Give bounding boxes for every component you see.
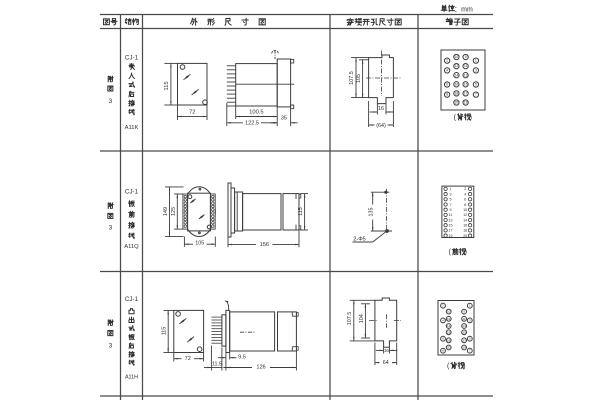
svg-text:35: 35 (281, 115, 287, 121)
svg-text:2: 2 (446, 59, 448, 63)
svg-text:16: 16 (463, 224, 467, 228)
svg-text:): ) (465, 249, 467, 256)
svg-text:11: 11 (464, 64, 468, 68)
svg-text:18: 18 (447, 338, 451, 342)
svg-text:A11K: A11K (125, 125, 139, 131)
svg-text:4: 4 (446, 69, 448, 73)
svg-text:11: 11 (463, 317, 466, 321)
svg-text:19: 19 (462, 346, 466, 350)
svg-text:CJ-1: CJ-1 (125, 296, 139, 303)
svg-text:：mm: ：mm (454, 6, 473, 13)
svg-text:17: 17 (462, 338, 466, 342)
svg-text:15: 15 (464, 82, 468, 86)
svg-text:17: 17 (449, 229, 453, 233)
svg-text:9: 9 (465, 55, 467, 59)
svg-text:135: 135 (368, 208, 374, 217)
svg-text:122.5: 122.5 (245, 120, 259, 126)
svg-text:72: 72 (185, 356, 191, 362)
svg-text:): ) (470, 115, 472, 122)
svg-text:20: 20 (447, 346, 451, 350)
svg-text:107.5: 107.5 (347, 312, 353, 326)
svg-text:3: 3 (109, 98, 113, 105)
svg-text:115: 115 (164, 81, 170, 90)
svg-text:105: 105 (195, 241, 204, 247)
svg-text:11.5: 11.5 (212, 362, 222, 368)
svg-text:6: 6 (464, 198, 466, 202)
svg-text:125: 125 (171, 207, 177, 216)
svg-text:15: 15 (449, 224, 453, 228)
svg-text:9.5: 9.5 (238, 355, 246, 361)
svg-text:12: 12 (455, 64, 459, 68)
svg-text:16: 16 (384, 348, 389, 353)
svg-text:8: 8 (446, 93, 448, 97)
svg-text:4: 4 (464, 192, 466, 196)
svg-text:10: 10 (463, 208, 467, 212)
svg-text:14: 14 (455, 73, 459, 77)
svg-text:5: 5 (450, 198, 452, 202)
svg-text:115: 115 (298, 207, 304, 216)
svg-text:72: 72 (189, 110, 195, 116)
svg-text:100.5: 100.5 (249, 110, 264, 116)
svg-text:19: 19 (449, 234, 453, 238)
svg-text:1: 1 (450, 187, 452, 191)
svg-text:5: 5 (475, 83, 477, 87)
svg-text:10: 10 (455, 55, 459, 59)
svg-text:11: 11 (449, 213, 453, 217)
svg-text:14: 14 (463, 218, 467, 222)
svg-text:14: 14 (447, 324, 451, 328)
svg-text:156: 156 (260, 242, 269, 248)
svg-text:107.5: 107.5 (349, 71, 355, 85)
svg-text:149: 149 (163, 207, 169, 216)
svg-text:2: 2 (464, 187, 466, 191)
svg-text:115: 115 (162, 327, 168, 336)
svg-text:CJ-1: CJ-1 (125, 55, 139, 62)
svg-text:3: 3 (450, 192, 452, 196)
svg-text:104: 104 (359, 314, 365, 323)
svg-text:126: 126 (256, 365, 265, 371)
svg-text:1: 1 (475, 59, 477, 63)
svg-text:16: 16 (455, 82, 459, 86)
svg-text:): ) (463, 363, 465, 370)
svg-text:A11Q: A11Q (124, 244, 139, 250)
svg-text:8: 8 (464, 203, 466, 207)
svg-text:10: 10 (447, 310, 451, 314)
svg-text:13: 13 (464, 73, 468, 77)
svg-text:3: 3 (109, 343, 113, 350)
svg-text:16: 16 (447, 330, 451, 334)
svg-text:20: 20 (455, 101, 459, 105)
svg-text:3: 3 (109, 225, 113, 232)
svg-text:19: 19 (464, 101, 468, 105)
svg-text:16: 16 (378, 106, 384, 112)
svg-text:12: 12 (447, 317, 451, 321)
svg-text:3: 3 (475, 69, 477, 73)
svg-text:9: 9 (450, 208, 452, 212)
svg-text:(64): (64) (376, 123, 386, 129)
svg-text:6: 6 (446, 83, 448, 87)
svg-text:7: 7 (450, 203, 452, 207)
svg-text:18: 18 (455, 92, 459, 96)
svg-text:105: 105 (356, 74, 362, 83)
svg-text:CJ-1: CJ-1 (125, 189, 139, 196)
svg-text:64: 64 (383, 360, 389, 366)
svg-text:17: 17 (464, 92, 468, 96)
svg-text:18: 18 (463, 229, 467, 233)
svg-text:7: 7 (475, 93, 477, 97)
svg-text:13: 13 (462, 324, 466, 328)
svg-text:20: 20 (463, 234, 467, 238)
svg-text:13: 13 (449, 218, 453, 222)
svg-text:12: 12 (463, 213, 467, 217)
svg-text:A11H: A11H (125, 375, 138, 381)
svg-text:15: 15 (462, 330, 466, 334)
